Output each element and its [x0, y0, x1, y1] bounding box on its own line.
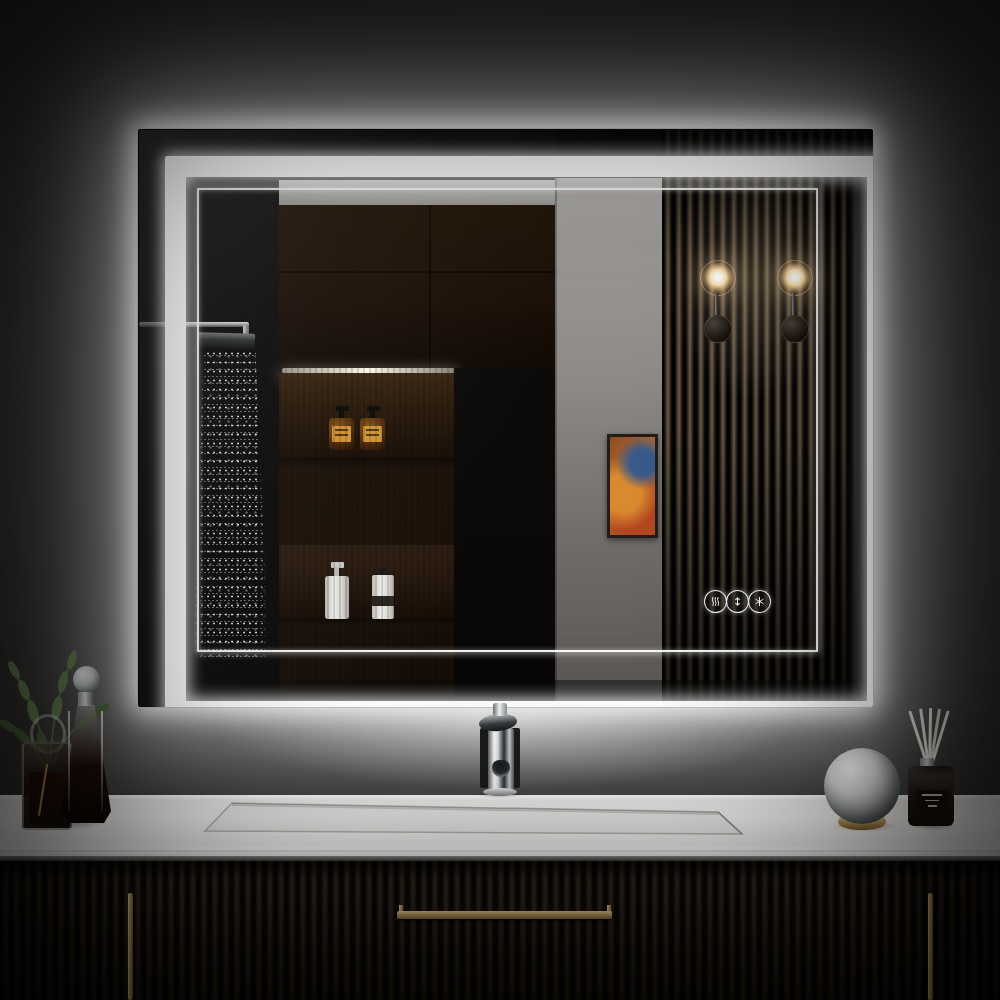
- reed-diffuser: [902, 700, 958, 828]
- led-mirror: [137, 128, 874, 708]
- glass-highlight: [68, 711, 70, 811]
- color-temp-icon: [753, 595, 766, 608]
- red-glass-bottle: [0, 779, 17, 825]
- bathroom-scene: [0, 0, 1000, 1000]
- integrated-sink: [185, 796, 765, 848]
- glass-decanter: [60, 666, 112, 824]
- decanter-stopper: [73, 666, 100, 693]
- brightness-icon: [731, 595, 744, 608]
- glass-highlight: [101, 711, 103, 811]
- color-temp-button[interactable]: [748, 590, 771, 613]
- right-drawer-handle[interactable]: [928, 893, 933, 1000]
- left-drawer-handle[interactable]: [128, 893, 133, 1000]
- defogger-icon: [709, 595, 722, 608]
- faucet-body: [488, 728, 514, 790]
- vase-contents: [29, 772, 63, 823]
- defogger-button[interactable]: [704, 590, 727, 613]
- faucet-spout-opening: [492, 760, 510, 777]
- diffuser-label: [916, 790, 948, 812]
- center-drawer-handle[interactable]: [397, 911, 612, 919]
- dimmer-button[interactable]: [726, 590, 749, 613]
- cabinet-shading: [0, 861, 1000, 1000]
- faucet-top-cap: [493, 703, 507, 716]
- faucet-base: [483, 788, 517, 796]
- chrome-faucet[interactable]: [468, 702, 532, 796]
- mirrored-sphere: [824, 748, 900, 824]
- decanter-neck: [78, 692, 94, 706]
- inner-accent-line: [197, 188, 818, 652]
